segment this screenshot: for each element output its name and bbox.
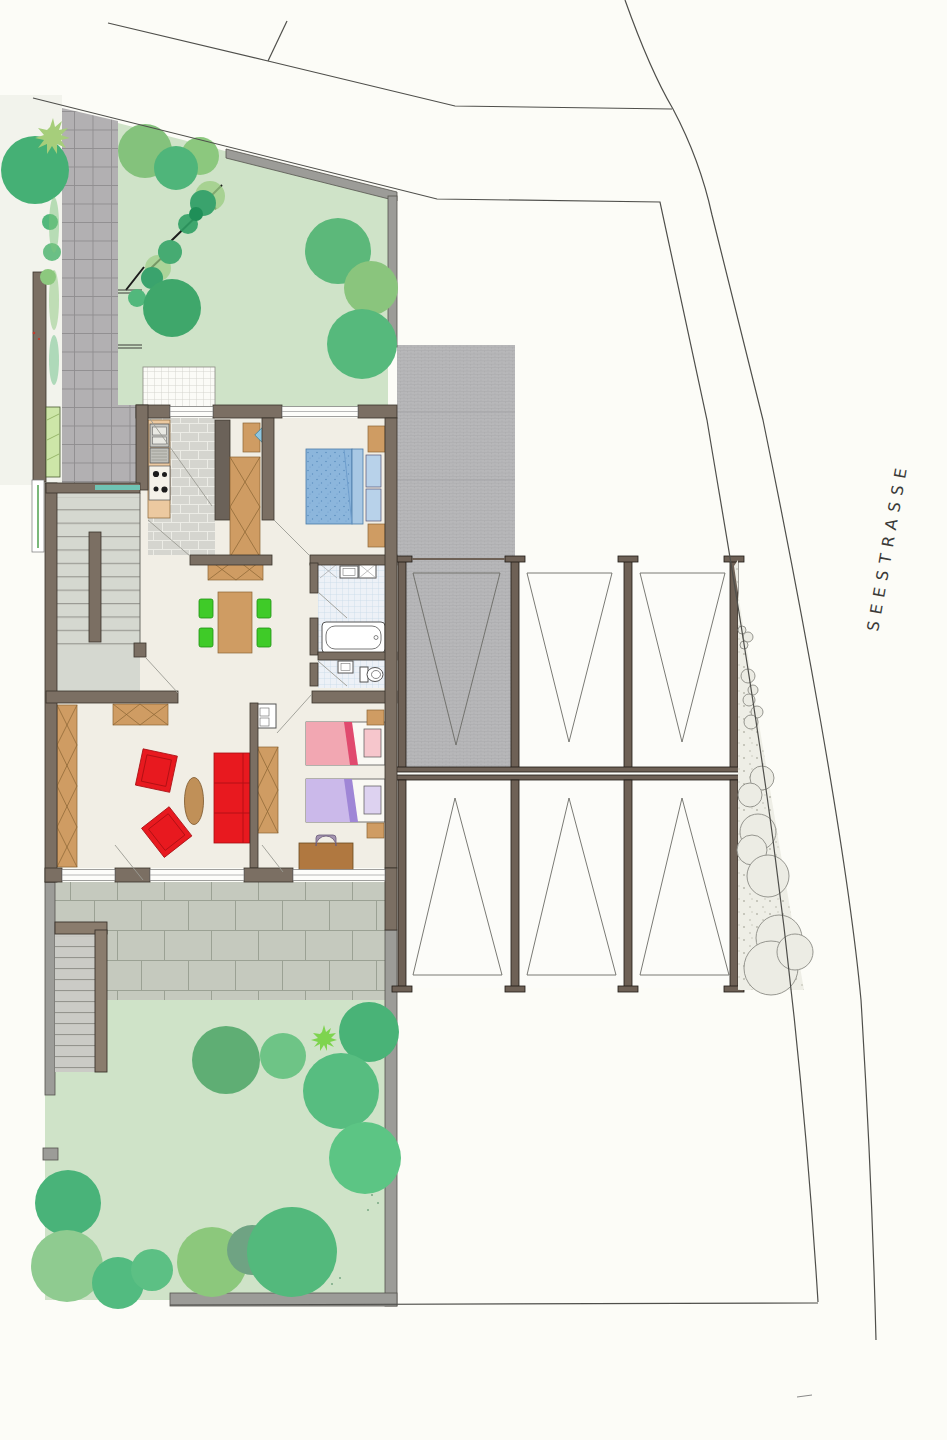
sofa bbox=[214, 753, 250, 843]
entry-porch-pad bbox=[143, 367, 215, 407]
kids-nightstand bbox=[367, 710, 384, 725]
burner bbox=[153, 471, 159, 477]
kids-bed-pink bbox=[306, 722, 385, 765]
parking-space-5 bbox=[519, 780, 624, 988]
coffee-table bbox=[185, 778, 204, 825]
floor-plan-drawing: SEESTRASSE bbox=[0, 0, 947, 1440]
site-plan: SEESTRASSE bbox=[0, 0, 947, 1440]
burner bbox=[154, 487, 159, 492]
living-sideboard bbox=[113, 704, 168, 725]
garden-stairs bbox=[55, 922, 107, 1072]
sink-basin bbox=[153, 427, 167, 435]
dining-chair bbox=[257, 628, 271, 647]
hall-glass-strip bbox=[95, 485, 140, 490]
nightstand bbox=[368, 426, 385, 452]
kids-nightstand bbox=[367, 823, 384, 838]
kids-desk bbox=[299, 843, 353, 871]
dining-chair bbox=[257, 599, 271, 618]
dishwasher bbox=[150, 448, 169, 463]
double-bed bbox=[306, 449, 381, 524]
armchair bbox=[135, 749, 177, 792]
kitchen-tall-units bbox=[215, 420, 230, 520]
parking-space-6 bbox=[632, 780, 730, 988]
boundary-wall-left bbox=[33, 272, 46, 482]
entry-path-paving bbox=[62, 108, 118, 483]
garden-wall-left bbox=[45, 882, 55, 1095]
living-wardrobe bbox=[57, 705, 77, 867]
nightstand bbox=[368, 524, 385, 547]
boundary-line-north bbox=[108, 23, 672, 109]
dining-area bbox=[199, 559, 271, 653]
dining-chair bbox=[199, 599, 213, 618]
parking-space-2 bbox=[519, 560, 624, 768]
burner bbox=[161, 486, 167, 492]
kids-bed-purple bbox=[306, 779, 385, 822]
sink-basin-2 bbox=[153, 437, 167, 444]
garden-wall-stub bbox=[43, 1148, 58, 1160]
burner bbox=[162, 472, 167, 477]
street-name-label: SEESTRASSE bbox=[863, 460, 912, 633]
boundary-spur bbox=[268, 21, 287, 61]
stair-railing-wall bbox=[89, 532, 101, 642]
driveway bbox=[397, 345, 515, 558]
entry-path-paving-2 bbox=[118, 405, 136, 483]
dining-chair bbox=[199, 628, 213, 647]
stair-treads-outdoor bbox=[55, 936, 95, 1070]
bedroom-wardrobe bbox=[230, 457, 260, 557]
stove bbox=[149, 466, 170, 500]
parking-area bbox=[392, 556, 744, 992]
kids-wardrobe bbox=[257, 747, 278, 833]
survey-tick bbox=[797, 1395, 812, 1397]
house bbox=[45, 405, 397, 930]
street-shrub-strip bbox=[734, 560, 813, 995]
stair-wall-side bbox=[95, 930, 107, 1072]
planter-box bbox=[46, 407, 60, 477]
dining-table bbox=[218, 592, 252, 653]
wc-sink bbox=[338, 661, 353, 673]
